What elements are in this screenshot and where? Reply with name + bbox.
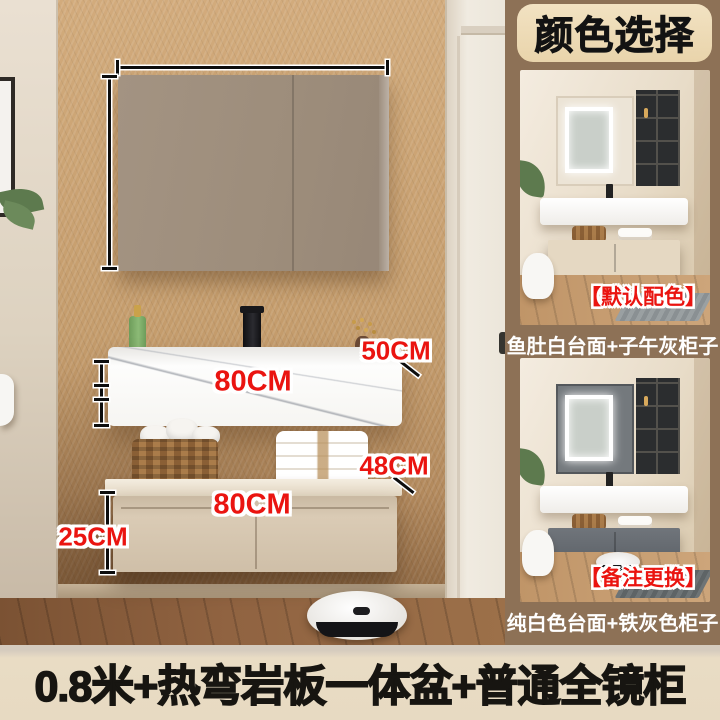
dimension-tick — [94, 360, 109, 363]
main-bathroom-photo: 50CM 80CM 48CM 80CM 25CM — [0, 0, 505, 645]
variant-caption-alternate: 纯白色台面+铁灰色柜子 — [505, 607, 720, 636]
toilet — [0, 374, 14, 426]
glass-side-cabinet — [636, 378, 680, 474]
product-title: 0.8米+热弯岩板一体盆+普通全镜柜 — [35, 652, 686, 714]
mirror-cabinet-gray — [556, 384, 634, 474]
faucet — [243, 306, 261, 351]
door — [445, 0, 505, 645]
label-80cm-basin: 80CM — [214, 366, 291, 399]
bottle-glints — [644, 108, 648, 118]
dimension-tick — [386, 60, 389, 75]
plant-leaf — [520, 448, 548, 486]
basin — [540, 198, 688, 225]
color-selection-header: 颜色选择 — [517, 4, 712, 62]
color-selection-panel: 颜色选择 【默认配色】 鱼肚白台面+子午灰柜子 — [505, 0, 720, 645]
door-transom — [461, 26, 505, 35]
variant-photo-default: 【默认配色】 — [520, 70, 710, 325]
dried-flowers — [352, 320, 356, 324]
toilet — [522, 530, 554, 576]
dimension-tick — [116, 60, 119, 75]
dimension-tick — [94, 424, 109, 427]
led-mirror — [565, 107, 613, 173]
mirror-door-seam — [292, 75, 294, 271]
dimension-line-mirror-height — [108, 77, 111, 269]
dimension-line-basin-height — [100, 362, 103, 426]
dimension-tick — [102, 267, 117, 270]
product-title-banner: 0.8米+热弯岩板一体盆+普通全镜柜 — [0, 645, 720, 720]
robot-vacuum-bumper — [316, 622, 398, 637]
wood-floor — [0, 598, 505, 645]
robot-vacuum — [307, 591, 407, 640]
led-mirror — [565, 395, 613, 461]
mirror-edge-highlight — [379, 75, 389, 271]
mirror-cabinet — [118, 75, 389, 271]
label-50cm: 50CM — [361, 336, 430, 367]
dimension-line-mirror-width — [118, 66, 388, 69]
variant-caption-default: 鱼肚白台面+子午灰柜子 — [505, 330, 720, 359]
drawer-cabinet-cream — [548, 240, 680, 276]
dimension-tick — [100, 571, 115, 574]
dimension-tick — [94, 398, 109, 401]
bottle-glints — [644, 396, 648, 406]
door-frame — [457, 36, 460, 626]
dimension-tick — [94, 384, 109, 387]
basin — [540, 486, 688, 513]
variant-tag-alternate: 【备注更换】 — [580, 562, 706, 592]
label-25cm: 25CM — [58, 522, 127, 553]
glass-side-cabinet — [636, 90, 680, 186]
variant-tag-default: 【默认配色】 — [580, 281, 706, 311]
variant-photo-alternate: 【备注更换】 — [520, 358, 710, 602]
towel — [618, 516, 652, 528]
label-48cm: 48CM — [359, 451, 428, 482]
dimension-tick — [100, 491, 115, 494]
product-detail-image: 50CM 80CM 48CM 80CM 25CM 颜色选择 — [0, 0, 720, 720]
robot-vacuum-sensor — [353, 607, 370, 615]
toilet — [522, 253, 554, 299]
dimension-tick — [102, 75, 117, 78]
label-80cm-cabinet: 80CM — [213, 489, 290, 522]
towel — [618, 228, 652, 240]
plant-leaf — [520, 160, 548, 198]
mirror-cabinet — [556, 96, 634, 186]
drawer-divider — [614, 244, 616, 272]
